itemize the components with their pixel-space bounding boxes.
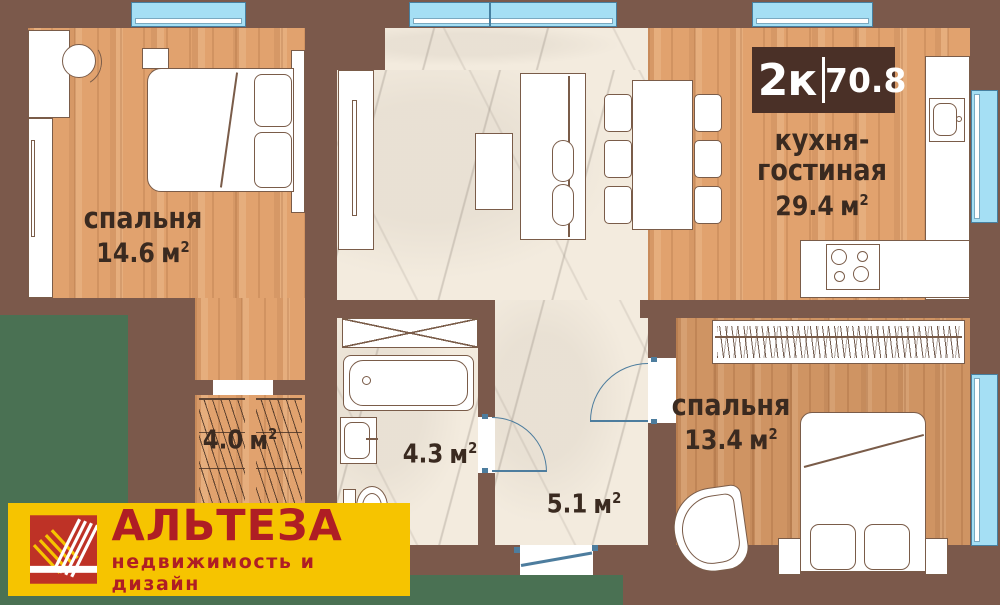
nightstand-icon: [778, 538, 801, 575]
door-hinge: [651, 357, 657, 362]
room-name: кухня-: [757, 125, 887, 155]
wall-bedroom1-bottom: [0, 298, 195, 315]
dining-chair-icon: [604, 94, 632, 132]
kitchen-side-window: [971, 90, 998, 223]
bedroom2-window: [971, 374, 998, 546]
dining-chair-icon: [604, 140, 632, 178]
area-value: 14.6: [96, 238, 155, 269]
area-unit: м: [161, 238, 180, 269]
logo-text: АЛЬТЕЗА недвижимость и дизайн: [111, 505, 410, 595]
pillow-icon: [864, 524, 910, 570]
hob-burner: [831, 249, 847, 265]
area-unit: м: [749, 425, 768, 456]
bathtub-drain: [362, 376, 371, 385]
kitchen-sink-basin: [933, 103, 957, 136]
area-value: 4.0: [203, 426, 244, 456]
logo-subtitle: недвижимость и дизайн: [111, 551, 410, 595]
sink-faucet: [366, 438, 378, 440]
area-value: 13.4: [684, 425, 743, 456]
area-value: 5.1: [547, 490, 588, 520]
sofa-pillow-icon: [552, 140, 574, 182]
wardrobe-icon: [712, 320, 965, 364]
window-sill: [974, 94, 980, 219]
bathroom-label: 4.3м2: [403, 434, 478, 470]
bedroom2-door-leaf: [590, 420, 648, 422]
window-divider: [489, 3, 491, 26]
hob-burner: [853, 266, 869, 282]
sofa-pillow-icon: [552, 184, 574, 226]
wardrobe-rail: [715, 336, 962, 338]
room-area: 29.4м2: [757, 191, 887, 222]
living-floor-top: [385, 28, 648, 70]
room-name: спальня: [84, 203, 203, 233]
room-area: 4.0м2: [203, 425, 278, 456]
room-area: 13.4м2: [672, 425, 791, 456]
wall-living-chunk: [337, 28, 385, 70]
door-hinge: [651, 419, 657, 424]
wall-closet-lip-right: [273, 380, 305, 395]
bathroom-door-leaf: [492, 470, 547, 472]
bedroom1-window: [131, 2, 246, 27]
window-sill: [756, 18, 869, 24]
tv-icon: [352, 100, 357, 216]
window-sill: [974, 378, 980, 542]
logo-banner: АЛЬТЕЗА недвижимость и дизайн: [8, 503, 410, 596]
nightstand-icon: [925, 538, 948, 575]
pillow-icon: [254, 132, 292, 188]
kitchen-living-label: кухня- гостиная 29.4м2: [757, 125, 887, 222]
door-hinge: [482, 414, 488, 419]
wall-bedroom2-left-a: [648, 318, 676, 358]
bedroom1-label: спальня 14.6м2: [84, 203, 203, 269]
hob-burner: [834, 271, 845, 282]
area-unit: м: [449, 440, 468, 470]
wardrobe-handle: [31, 140, 35, 237]
bedroom2-label: спальня 13.4м2: [672, 390, 791, 456]
area-unit: м: [840, 191, 859, 222]
room-name: гостиная: [757, 155, 887, 185]
area-unit: м: [249, 426, 268, 456]
hallway-label: 5.1м2: [547, 484, 622, 520]
room-area: 14.6м2: [84, 238, 203, 269]
coffee-table-icon: [475, 133, 513, 210]
dining-table-icon: [632, 80, 693, 230]
area-value: 4.3: [403, 440, 444, 470]
door-hinge: [482, 468, 488, 473]
wall-bathroom-top: [337, 300, 495, 318]
wall-kitchen-bottom: [640, 300, 970, 318]
hob-burner: [857, 251, 868, 262]
kitchen-faucet: [956, 116, 962, 122]
floor-plan: спальня 14.6м2 кухня- гостиная 29.4м2 сп…: [0, 0, 1000, 605]
room-area: 5.1м2: [547, 489, 622, 520]
window-sill: [135, 18, 242, 24]
door-hinge: [514, 547, 520, 553]
wall-left: [0, 28, 28, 300]
wall-bedroom1-right: [305, 28, 337, 545]
room-area: 4.3м2: [403, 439, 478, 470]
area-sup: 2: [612, 489, 621, 507]
door-hinge: [592, 545, 598, 551]
wall-bottom-right: [623, 575, 1000, 605]
wall-bathroom-right-a: [478, 318, 495, 417]
dining-chair-icon: [604, 186, 632, 224]
area-sup: 2: [769, 425, 778, 443]
area-sup: 2: [860, 191, 869, 209]
wall-bathroom-right-b: [478, 473, 495, 545]
area-sup: 2: [181, 238, 190, 256]
sink-basin: [344, 422, 370, 459]
living-window: [409, 2, 617, 27]
dining-chair-icon: [694, 94, 722, 132]
closet-label: 4.0м2: [203, 420, 278, 456]
dining-chair-icon: [694, 186, 722, 224]
alteza-logo-icon: [30, 515, 97, 584]
area-value: 29.4: [775, 191, 834, 222]
window-sill: [413, 18, 613, 24]
area-unit: м: [593, 490, 612, 520]
pillow-icon: [254, 74, 292, 127]
badge-total-area: 70.8: [825, 61, 906, 100]
washing-machine-icon: [342, 318, 478, 348]
logo-title: АЛЬТЕЗА: [111, 505, 410, 548]
closet-opening: [213, 380, 273, 395]
wall-closet-lip-left: [195, 380, 213, 395]
badge-rooms-count: 2к: [752, 55, 822, 106]
room-name: спальня: [672, 390, 791, 420]
kitchen-top-window: [752, 2, 873, 27]
apartment-badge: 2к 70.8: [752, 47, 895, 113]
area-sup: 2: [468, 439, 477, 457]
nightstand-icon: [142, 48, 169, 69]
area-sup: 2: [268, 425, 277, 443]
dining-chair-icon: [694, 140, 722, 178]
wardrobe-clothes: [717, 326, 960, 358]
pillow-icon: [810, 524, 856, 570]
